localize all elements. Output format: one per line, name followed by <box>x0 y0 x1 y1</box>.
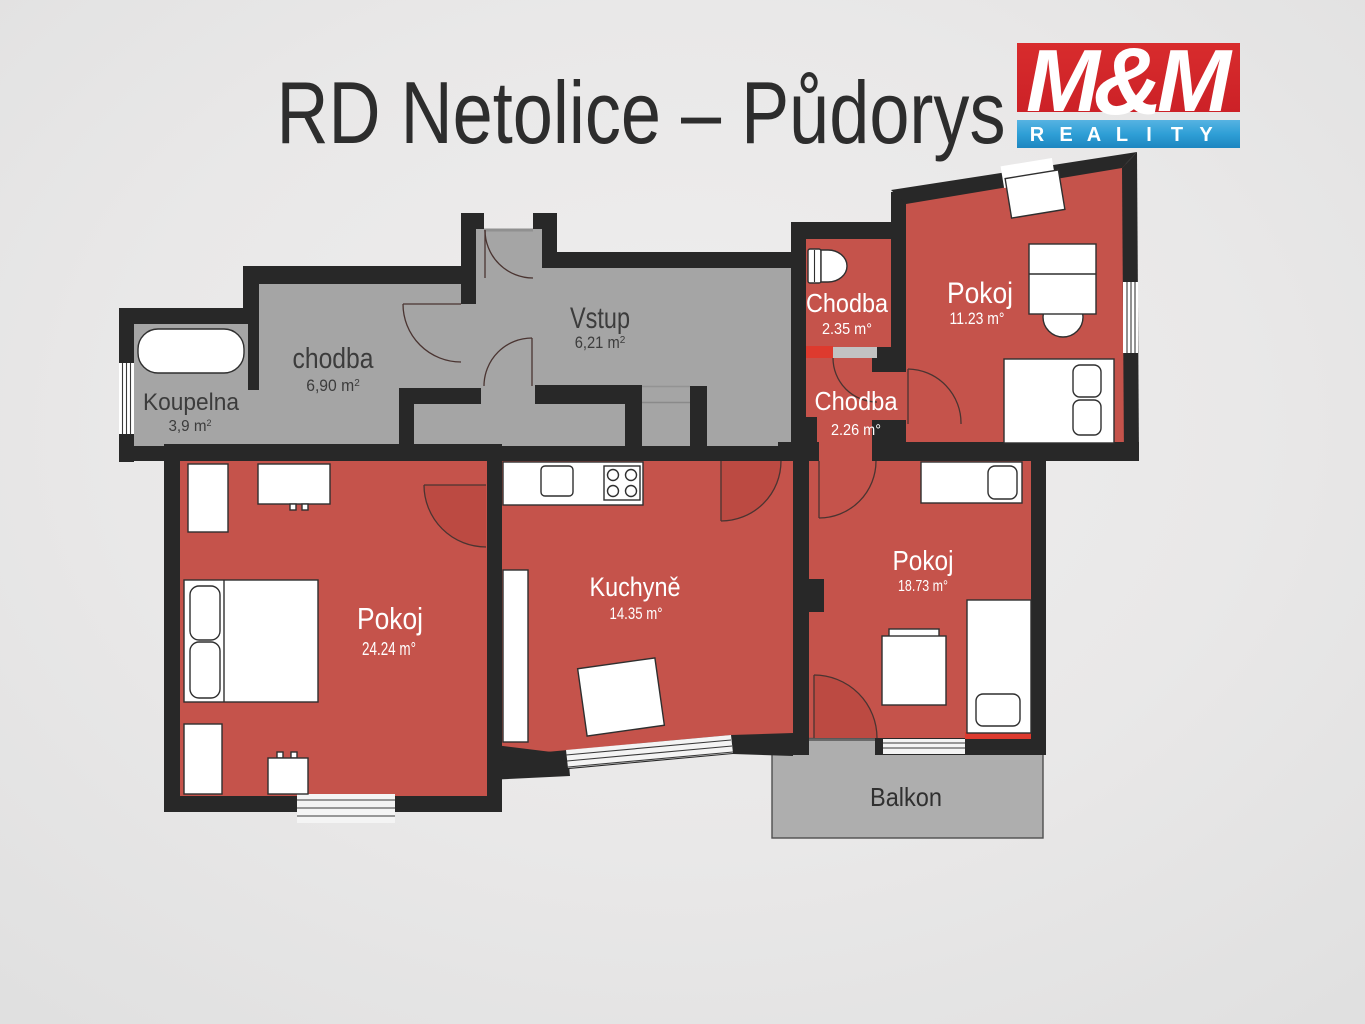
svg-text:2.35 m°: 2.35 m° <box>822 321 872 338</box>
svg-text:A: A <box>1087 124 1101 146</box>
svg-text:14.35 m°: 14.35 m° <box>610 604 663 623</box>
svg-text:Pokoj: Pokoj <box>947 277 1013 310</box>
svg-text:24.24 m°: 24.24 m° <box>362 639 416 659</box>
svg-text:Pokoj: Pokoj <box>357 601 423 636</box>
svg-text:&: & <box>1093 28 1162 135</box>
svg-text:Pokoj: Pokoj <box>893 545 954 576</box>
svg-text:18.73 m°: 18.73 m° <box>898 578 948 595</box>
svg-text:L: L <box>1116 124 1128 146</box>
svg-text:T: T <box>1171 124 1183 146</box>
svg-text:Vstup: Vstup <box>570 302 630 335</box>
svg-text:R: R <box>1030 124 1045 146</box>
svg-text:RD Netolice – Půdorys: RD Netolice – Půdorys <box>277 63 1006 162</box>
svg-text:2.26 m°: 2.26 m° <box>831 422 881 439</box>
svg-text:Y: Y <box>1199 124 1213 146</box>
svg-text:Balkon: Balkon <box>870 782 942 812</box>
svg-text:chodba: chodba <box>293 343 375 375</box>
svg-text:3,9 m2: 3,9 m2 <box>168 418 211 435</box>
svg-text:6,90 m2: 6,90 m2 <box>306 376 360 395</box>
svg-text:M: M <box>1026 31 1102 130</box>
svg-text:6,21 m2: 6,21 m2 <box>575 333 626 352</box>
svg-text:Kuchyně: Kuchyně <box>590 572 681 602</box>
svg-text:Chodba: Chodba <box>815 386 898 416</box>
svg-text:Chodba: Chodba <box>806 288 888 318</box>
svg-text:11.23 m°: 11.23 m° <box>950 309 1005 328</box>
svg-text:M: M <box>1157 31 1233 130</box>
svg-text:Koupelna: Koupelna <box>143 389 240 416</box>
svg-text:E: E <box>1059 124 1072 146</box>
svg-text:I: I <box>1146 124 1152 146</box>
